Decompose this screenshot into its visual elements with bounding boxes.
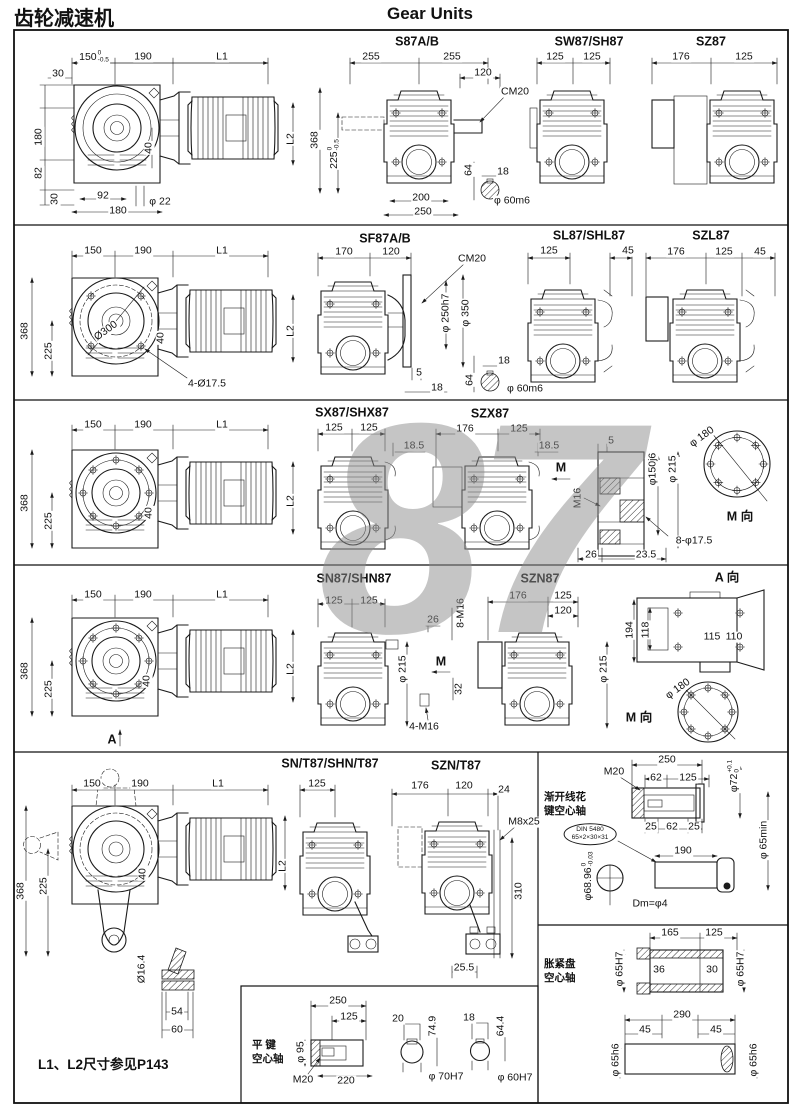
- row3-m-flange-view: [704, 427, 770, 501]
- dim-label: 176: [508, 591, 528, 602]
- dim-label: M8x25: [507, 817, 541, 828]
- dim-label: L1: [215, 420, 229, 431]
- dim-label: 4-M16: [408, 722, 440, 733]
- page-title-english: Gear Units: [387, 4, 473, 24]
- dim-label: φ 350: [461, 298, 472, 327]
- dim-label: 8-M16: [456, 597, 467, 629]
- label-line: 键空心轴: [544, 804, 586, 818]
- model-title: SN87/SHN87: [315, 573, 392, 586]
- dim-label: 125: [324, 423, 344, 434]
- dim-label: 23.5: [635, 550, 657, 561]
- dim-label: 25: [687, 822, 701, 833]
- dim-label: φ 60m6: [506, 384, 544, 395]
- dim-label: φ68.960-0.03: [582, 851, 595, 902]
- dim-label: 45: [753, 247, 767, 258]
- dim-label: L2: [286, 324, 297, 338]
- dim-label: 45: [638, 1025, 652, 1036]
- dim-label: M16: [573, 487, 584, 509]
- dim-label: 40: [144, 141, 155, 155]
- dim-value: 225: [328, 151, 340, 169]
- dim-label: 120: [454, 781, 474, 792]
- view-label: A 向: [714, 572, 741, 585]
- dim-label: 368: [20, 493, 31, 513]
- row5-side-view: [24, 769, 286, 956]
- dim-label: 18: [430, 383, 444, 394]
- dim-label: 368: [310, 130, 321, 150]
- dim-label: 30: [50, 192, 61, 206]
- model-title: SZ87: [695, 36, 727, 49]
- dim-label: 18.5: [403, 441, 425, 452]
- dim-label: φ 65h6: [749, 1042, 760, 1077]
- dim-label: 368: [20, 661, 31, 681]
- dim-label: 120: [473, 68, 493, 79]
- key-shaft-label: 平 键空心轴: [252, 1038, 284, 1066]
- dim-label: L2: [278, 859, 289, 873]
- dim-label: φ 60m6: [493, 196, 531, 207]
- dim-label: 82: [34, 166, 45, 180]
- model-title: SN/T87/SHN/T87: [280, 758, 379, 771]
- label-line: 空心轴: [544, 971, 576, 985]
- dim-label: 24: [497, 785, 511, 796]
- dim-label: L1: [211, 779, 225, 790]
- dim-label: 8-φ17.5: [675, 536, 714, 547]
- dim-label: 176: [410, 781, 430, 792]
- row4-side-view: [32, 595, 293, 746]
- dim-label: 225: [44, 341, 55, 361]
- dim-label: 190: [673, 846, 693, 857]
- dim-label: 45: [621, 246, 635, 257]
- label-line: 胀紧盘: [544, 957, 576, 971]
- dim-label: 290: [672, 1010, 692, 1021]
- dim-label: 190: [133, 420, 153, 431]
- dim-label: 2250-0.5: [328, 138, 341, 170]
- dim-label: 125: [539, 246, 559, 257]
- row1-sz87-view: [652, 58, 777, 184]
- model-title: S87A/B: [394, 36, 440, 49]
- footnote: L1、L2尺寸参见P143: [38, 1053, 169, 1073]
- dim-label: 150: [83, 420, 103, 431]
- dim-label: 165: [660, 928, 680, 939]
- dim-label: φ72+0.10: [728, 759, 741, 793]
- dim-label: 368: [16, 881, 27, 901]
- dim-label: 194: [625, 620, 636, 640]
- dim-label: 150: [83, 590, 103, 601]
- dim-label: φ 65min: [759, 820, 770, 860]
- row2-sl87-view: [528, 253, 632, 382]
- dim-label: 20: [391, 1014, 405, 1025]
- dim-label: 180: [34, 127, 45, 147]
- dim-label: 18: [462, 1013, 476, 1024]
- dim-label: φ 215: [599, 654, 610, 683]
- dim-value: φ68.96: [582, 867, 594, 900]
- row3-side-view: [32, 425, 293, 548]
- dim-label: φ 65h6: [611, 1042, 622, 1077]
- label-line: 65×2×30×31: [572, 834, 609, 842]
- dim-label: 150: [82, 779, 102, 790]
- dim-label: 225: [39, 876, 50, 896]
- dim-label: 125: [734, 52, 754, 63]
- dim-label: 120: [381, 247, 401, 258]
- dim-label: 120: [553, 606, 573, 617]
- label-line: 渐开线花: [544, 790, 586, 804]
- dim-label: 176: [671, 52, 691, 63]
- shrink-disc-label: 胀紧盘空心轴: [544, 957, 576, 985]
- dim-label: 45: [709, 1025, 723, 1036]
- dim-label: 62: [665, 822, 679, 833]
- label-line: 空心轴: [252, 1052, 284, 1066]
- dim-label: 250: [413, 207, 433, 218]
- dim-label: 310: [514, 881, 525, 901]
- dim-label: Dm=φ4: [631, 899, 668, 910]
- dim-label: 190: [133, 590, 153, 601]
- dim-label: M20: [292, 1075, 314, 1086]
- tolerance: 0-0.03: [582, 852, 595, 867]
- tolerance: 0-0.5: [328, 139, 341, 150]
- row1-sw87-view: [530, 58, 610, 183]
- model-title: SW87/SH87: [554, 36, 625, 49]
- dim-label: 255: [442, 52, 462, 63]
- dim-label: 125: [678, 773, 698, 784]
- dim-label: 110: [725, 632, 744, 643]
- dim-label: 30: [705, 965, 719, 976]
- dim-label: L1: [215, 590, 229, 601]
- dim-label: L2: [286, 662, 297, 676]
- dim-label: 125: [339, 1012, 359, 1023]
- dim-label: 180: [108, 206, 128, 217]
- drawing-linework: [0, 0, 800, 1117]
- dim-label: 26: [426, 615, 440, 626]
- dim-label: 255: [361, 52, 381, 63]
- dim-label: 170: [334, 247, 354, 258]
- dim-label: 115: [703, 632, 722, 643]
- row5-snt87-view: [300, 785, 378, 952]
- dim-label: 25.5: [453, 963, 475, 974]
- dim-label: φ 250h7: [441, 293, 452, 334]
- row1-side-view: [40, 58, 293, 212]
- dim-label: Ø16.4: [137, 954, 148, 985]
- label-line: DIN 5480: [572, 826, 609, 834]
- dim-label: 125: [582, 52, 602, 63]
- tolerance: +0.10: [728, 760, 741, 773]
- dim-label: 225: [44, 679, 55, 699]
- row2-side-view: [32, 251, 293, 378]
- model-title: SL87/SHL87: [552, 230, 626, 243]
- dim-label: L2: [286, 132, 297, 146]
- model-title: SF87A/B: [358, 233, 411, 246]
- view-label: M 向: [726, 511, 754, 524]
- dim-label: 125: [545, 52, 565, 63]
- dim-label: φ 215: [668, 454, 679, 483]
- dim-label: 220: [336, 1076, 356, 1087]
- dim-label: φ 60H7: [497, 1073, 534, 1084]
- dim-label: 36: [652, 965, 666, 976]
- dim-label: L2: [286, 494, 297, 508]
- dim-label: 368: [20, 321, 31, 341]
- dim-label: 176: [455, 424, 475, 435]
- catalog-page: 齿轮减速机 Gear Units 87 1500-0.5 190 L1 30 1…: [0, 0, 800, 1117]
- model-title: SZN/T87: [430, 760, 482, 773]
- row4-m-flange-view: [678, 682, 738, 742]
- model-title: SZX87: [470, 408, 510, 421]
- model-title: SZL87: [691, 230, 731, 243]
- dim-label: M20: [603, 767, 625, 778]
- dim-label: φ 22: [148, 197, 171, 208]
- dim-label: 18: [496, 167, 510, 178]
- dim-label: 190: [133, 246, 153, 257]
- dim-label: 54: [170, 1007, 184, 1018]
- dim-label: 60: [170, 1025, 184, 1036]
- dim-label: φ 70H7: [428, 1072, 465, 1083]
- dim-label: 18: [497, 356, 511, 367]
- dim-label: 40: [156, 331, 167, 345]
- dim-label: 1500-0.5: [78, 51, 110, 64]
- view-arrow-label: M: [555, 462, 567, 475]
- dim-label: φ150j6: [648, 452, 659, 487]
- dim-label: L1: [215, 246, 229, 257]
- dim-label: 40: [138, 867, 149, 881]
- dim-label: 92: [96, 191, 110, 202]
- section-borders: [14, 30, 788, 1103]
- dim-label: 64: [465, 373, 476, 387]
- tolerance: 0-0.5: [98, 51, 109, 64]
- dim-label: φ 65H7: [736, 951, 747, 988]
- dim-label: L1: [215, 52, 229, 63]
- dim-label: 190: [133, 52, 153, 63]
- dim-label: 25: [644, 822, 658, 833]
- model-title: SZN87: [520, 573, 561, 586]
- dim-label: 125: [359, 596, 379, 607]
- dim-label: 250: [328, 996, 348, 1007]
- dim-label: 225: [44, 511, 55, 531]
- dim-label: CM20: [500, 87, 530, 98]
- dim-label: 30: [51, 69, 65, 80]
- dim-label: 125: [714, 247, 734, 258]
- view-label: M 向: [625, 712, 653, 725]
- row3-section-detail: [578, 444, 678, 562]
- dim-label: 125: [509, 424, 529, 435]
- dim-label: 74.9: [428, 1015, 439, 1037]
- dim-label: φ 65H7: [615, 951, 626, 988]
- dim-label: 18.5: [538, 441, 560, 452]
- model-title: SX87/SHX87: [314, 407, 390, 420]
- row4-szn87-view: [478, 597, 607, 728]
- dim-label: 5: [607, 436, 615, 447]
- spline-shaft-label: 渐开线花键空心轴: [544, 790, 586, 818]
- dim-label: 5: [415, 368, 423, 379]
- dim-label: 125: [553, 591, 573, 602]
- dim-label: φ 215: [398, 654, 409, 683]
- dim-label: 118: [641, 621, 652, 640]
- dim-label: 64: [464, 163, 475, 177]
- dim-label: 176: [666, 247, 686, 258]
- dim-label: 125: [704, 928, 724, 939]
- dim-label: 4-Ø17.5: [187, 379, 227, 390]
- row5-sznt87-view: [392, 789, 516, 978]
- dim-label: φ 95: [296, 1040, 307, 1063]
- dim-label: 250: [657, 755, 677, 766]
- dim-value: 150: [79, 51, 97, 63]
- dim-label: 40: [142, 674, 153, 688]
- dim-label: CM20: [457, 254, 487, 265]
- dim-label: 64.4: [496, 1015, 507, 1037]
- dim-label: 200: [411, 193, 431, 204]
- view-arrow-label: M: [435, 656, 447, 669]
- dim-label: 32: [454, 682, 465, 696]
- dim-label: 62: [649, 773, 663, 784]
- dim-label: 190: [130, 779, 150, 790]
- dim-label: 150: [83, 246, 103, 257]
- label-line: 平 键: [252, 1038, 284, 1052]
- dim-label: 26: [584, 550, 598, 561]
- view-arrow-label: A: [106, 734, 117, 747]
- dim-label: 125: [324, 596, 344, 607]
- dim-label: 125: [359, 423, 379, 434]
- page-title-chinese: 齿轮减速机: [14, 2, 114, 31]
- dim-label: 125: [307, 779, 327, 790]
- dim-label: 40: [144, 506, 155, 520]
- dim-value: φ72: [728, 774, 740, 793]
- din-spec-label: DIN 548065×2×30×31: [564, 823, 617, 845]
- row2-szl87-view: [646, 253, 775, 382]
